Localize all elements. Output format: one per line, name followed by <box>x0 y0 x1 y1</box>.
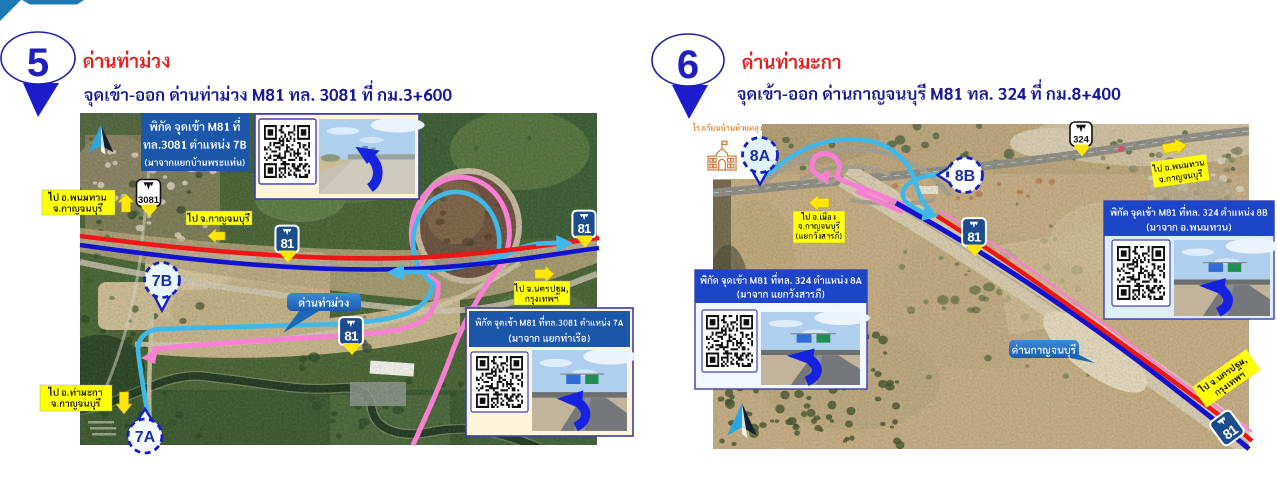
svg-text:6: 6 <box>677 43 699 87</box>
svg-text:81: 81 <box>967 230 982 245</box>
svg-text:7B: 7B <box>152 273 172 290</box>
svg-text:81: 81 <box>578 221 591 236</box>
svg-text:8B: 8B <box>955 168 975 185</box>
svg-text:8A: 8A <box>750 148 771 165</box>
svg-text:81: 81 <box>344 329 359 344</box>
svg-text:81: 81 <box>281 236 294 251</box>
svg-text:3081: 3081 <box>138 195 160 206</box>
svg-text:5: 5 <box>27 41 49 85</box>
svg-text:324: 324 <box>1073 135 1090 146</box>
svg-text:7A: 7A <box>135 429 156 446</box>
